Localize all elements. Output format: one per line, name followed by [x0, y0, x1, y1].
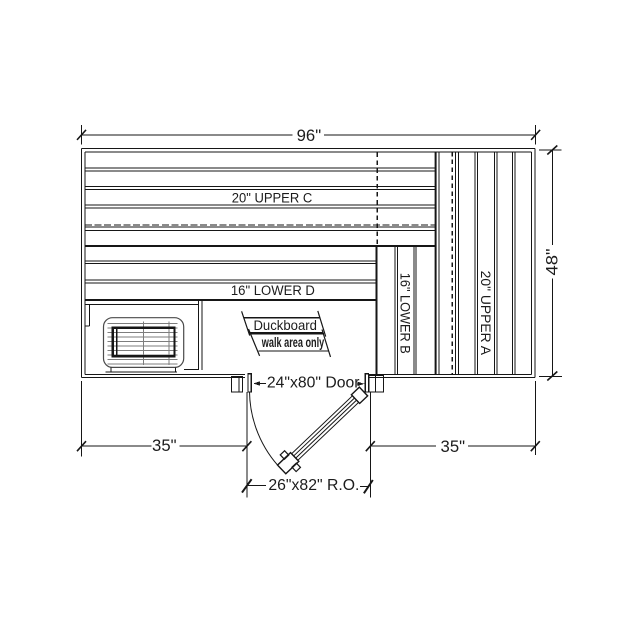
svg-text:96": 96"	[297, 126, 322, 145]
svg-text:16" LOWER D: 16" LOWER D	[231, 283, 315, 299]
svg-text:Duckboard: Duckboard	[253, 318, 317, 333]
svg-text:20" UPPER C: 20" UPPER C	[232, 190, 313, 206]
svg-text:20" UPPER A: 20" UPPER A	[477, 271, 493, 356]
svg-text:walk area only: walk area only	[261, 335, 324, 350]
svg-text:48": 48"	[542, 248, 561, 275]
svg-text:35": 35"	[152, 437, 177, 455]
svg-text:24"x80" Door: 24"x80" Door	[267, 375, 360, 392]
svg-text:26"x82" R.O.: 26"x82" R.O.	[268, 477, 359, 494]
svg-text:35": 35"	[441, 438, 466, 456]
svg-text:16" LOWER B: 16" LOWER B	[396, 273, 412, 354]
